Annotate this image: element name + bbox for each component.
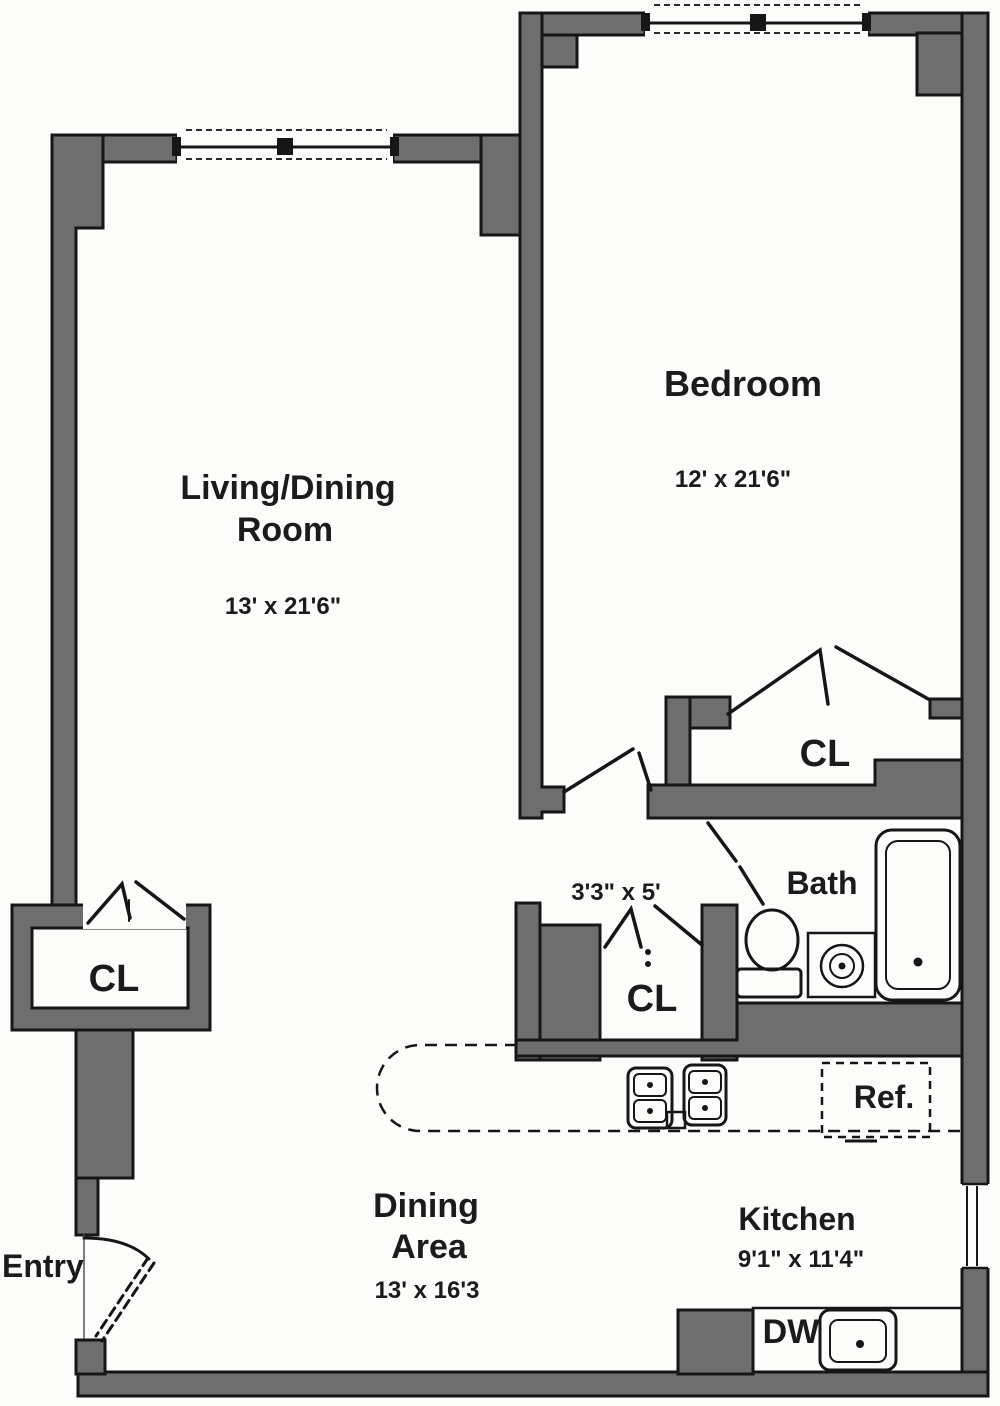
bedroom-door-leaf <box>564 749 651 792</box>
kitchen-label: Kitchen <box>738 1201 855 1237</box>
window-post <box>390 137 399 156</box>
toilet-tank <box>737 969 801 997</box>
wall-bedroom-closet-stub <box>690 697 730 728</box>
entry-door-leaf <box>96 1258 148 1336</box>
window-post <box>862 13 871 31</box>
entry-door-leaf <box>102 1263 154 1341</box>
bathtub-drain <box>914 958 923 967</box>
window-post <box>641 13 650 31</box>
floorplan-svg: Living/Dining Room 13' x 21'6" Bedroom 1… <box>0 0 1000 1406</box>
wall-bedroom-closet-left <box>666 697 690 790</box>
entry-closet-opening <box>83 902 186 929</box>
wall-divider-living-bedroom <box>520 13 564 818</box>
walls <box>12 13 988 1396</box>
bedroom-dimensions: 12' x 21'6" <box>675 466 791 493</box>
stove-burner-dot <box>702 1105 708 1111</box>
wall-kitchen-bottom-stub <box>678 1310 753 1374</box>
bedroom-closet-bifold-doors <box>728 647 930 714</box>
labels: Living/Dining Room 13' x 21'6" Bedroom 1… <box>2 363 914 1351</box>
hall-closet-door-pull <box>645 961 651 967</box>
stove-burner-dot <box>702 1079 708 1085</box>
kitchen-dimensions: 9'1" x 11'4" <box>738 1246 864 1273</box>
refrigerator-label: Ref. <box>854 1079 914 1115</box>
bathtub-inner <box>886 841 950 989</box>
hall-closet-label: CL <box>627 978 678 1020</box>
wall-living-left <box>52 135 103 905</box>
entry-closet-label: CL <box>89 958 140 1000</box>
wall-hall-closet-left <box>516 903 540 1060</box>
wall-bedroom-top-left <box>542 13 645 35</box>
wall-bedroom-closet-right-stub <box>930 699 962 718</box>
dining-area-label-line1: Dining <box>373 1187 479 1225</box>
hall-closet-bifold-doors <box>605 906 702 947</box>
window-gap <box>960 1184 990 1268</box>
entry-label: Entry <box>2 1248 84 1284</box>
dishwasher-label: DW <box>763 1313 821 1351</box>
dining-area-dimensions: 13' x 16'3 <box>375 1277 480 1304</box>
wall-column-living-ne <box>481 135 520 235</box>
wall-right <box>962 13 988 1372</box>
hall-closet-door-pull <box>645 949 651 955</box>
bedroom-closet-label: CL <box>800 733 851 775</box>
toilet-bowl <box>746 910 798 970</box>
bedroom-window <box>641 5 871 37</box>
bath-label: Bath <box>786 865 857 901</box>
window-mullion <box>277 138 293 155</box>
wall-corridor-block <box>76 1030 133 1178</box>
entry-door-swing-arc <box>84 1238 149 1259</box>
bathtub-outline <box>876 830 960 1000</box>
kitchen-sink-drain <box>856 1340 864 1348</box>
wall-bottom <box>78 1372 988 1396</box>
window-post <box>172 137 181 156</box>
window-mullion <box>750 14 766 31</box>
bedroom-label: Bedroom <box>664 363 822 404</box>
living-room-window <box>172 130 399 164</box>
wall-corridor <box>76 1178 98 1235</box>
living-room-dimensions: 13' x 21'6" <box>225 593 341 620</box>
hall-closet-dimensions: 3'3" x 5' <box>571 879 661 906</box>
bath-sink-drain <box>839 963 846 970</box>
stove-burner-dot <box>647 1108 653 1114</box>
stove-burner-dot <box>647 1082 653 1088</box>
living-room-label-line1: Living/Dining <box>180 469 395 507</box>
floorplan-page: Living/Dining Room 13' x 21'6" Bedroom 1… <box>0 0 1000 1406</box>
wall-column-bedroom-ne <box>917 33 962 95</box>
living-room-label-line2: Room <box>237 511 333 549</box>
wall-hall-closet-right <box>702 905 737 1060</box>
dining-area-label-line2: Area <box>391 1228 468 1266</box>
wall-living-top-left <box>103 135 177 162</box>
kitchen-window <box>960 1184 990 1268</box>
bath-door-leaf <box>708 823 763 904</box>
wall-bottom-left <box>76 1340 105 1374</box>
